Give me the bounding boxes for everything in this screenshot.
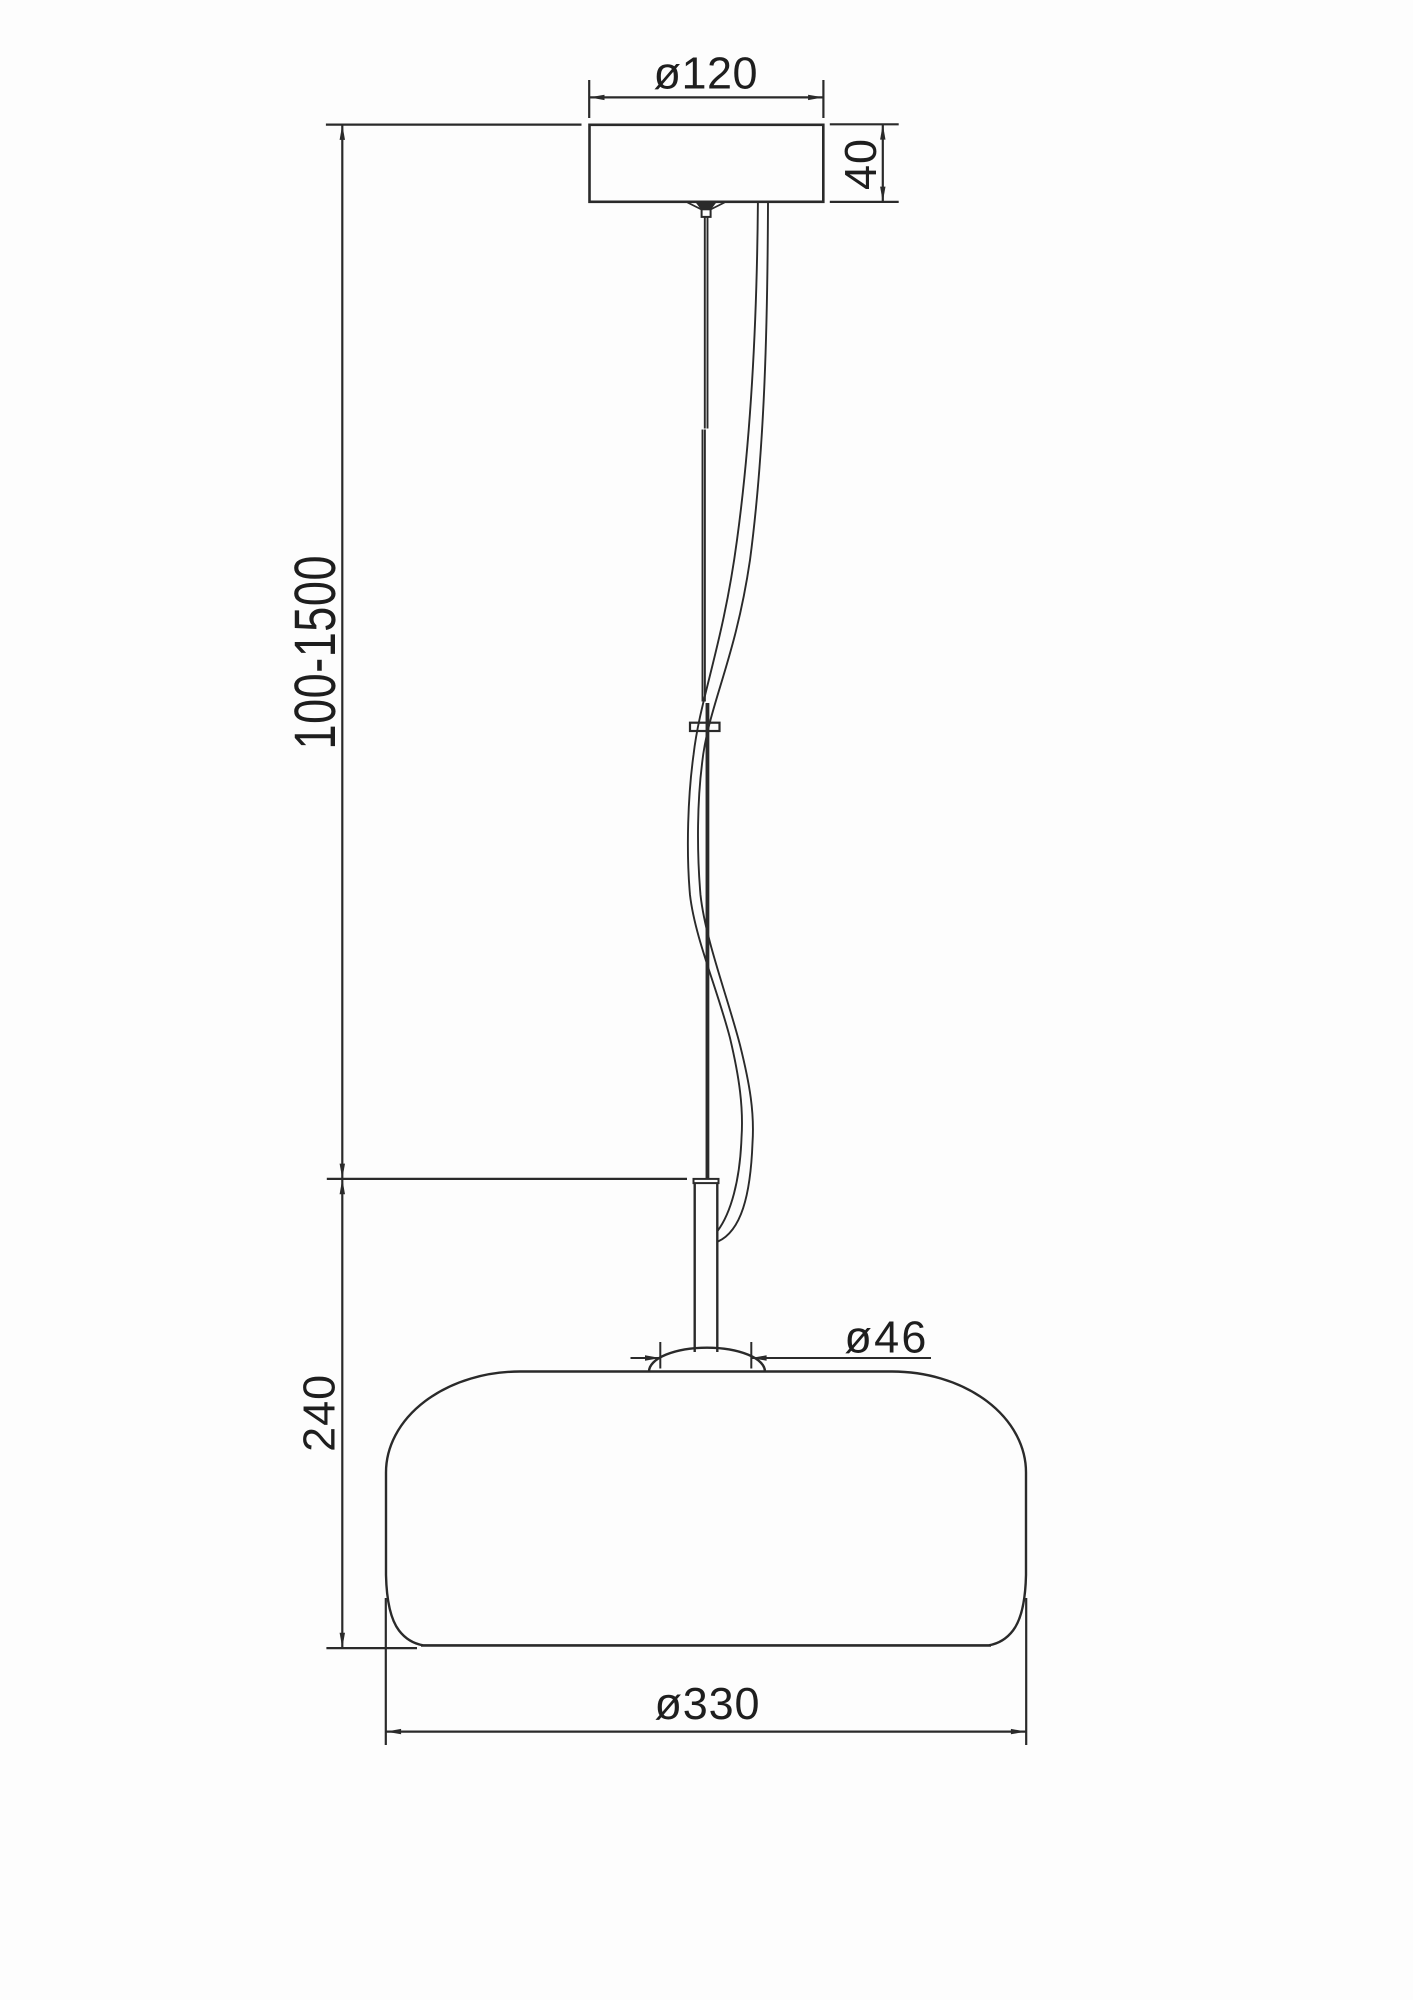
svg-text:100-1500: 100-1500 (282, 556, 348, 750)
svg-text:ø330: ø330 (655, 1678, 760, 1729)
svg-text:ø120: ø120 (654, 48, 758, 99)
svg-text:ø46: ø46 (844, 1312, 926, 1363)
svg-text:40: 40 (835, 139, 886, 190)
svg-text:240: 240 (293, 1375, 344, 1452)
